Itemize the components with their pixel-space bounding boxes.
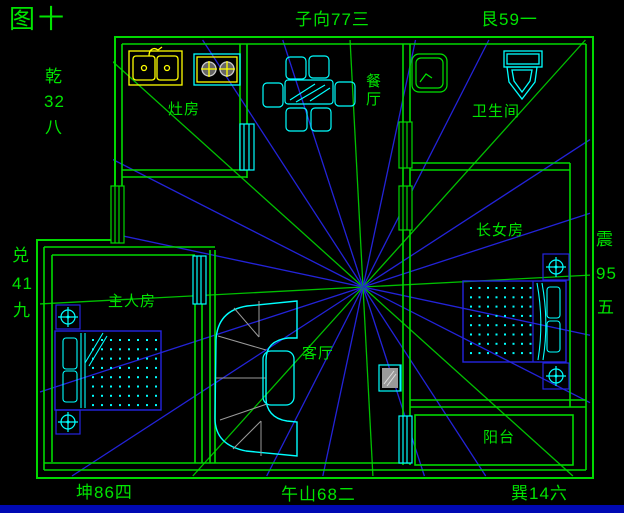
compass-label-left-lower-3: 九 [13, 302, 31, 319]
mattress-dot [101, 386, 103, 388]
mattress-dot [479, 315, 481, 317]
bedside-lamp-symbol [543, 363, 569, 389]
window-master-wall [193, 256, 206, 304]
mattress-dot [504, 343, 506, 345]
kitchen-sink [129, 47, 182, 85]
mattress-dot [479, 334, 481, 336]
mattress-dot [513, 352, 515, 354]
mattress-dot [92, 404, 94, 406]
compass-label-left-upper-2: 32 [44, 93, 65, 110]
mattress-dot [146, 404, 148, 406]
mattress-dot [119, 386, 121, 388]
mattress-dot [521, 352, 523, 354]
mattress-dot [155, 404, 157, 406]
bedside-lamp-symbol [56, 410, 80, 434]
mattress-dot [146, 358, 148, 360]
mattress-dot [128, 386, 130, 388]
mattress-dot [155, 348, 157, 350]
figure-title: 图十 [9, 6, 67, 32]
pillow [63, 338, 77, 369]
dining-chair [286, 108, 307, 131]
mattress-dot [470, 315, 472, 317]
mattress-dot [92, 339, 94, 341]
mattress-dot [513, 287, 515, 289]
mattress-dot [496, 352, 498, 354]
mattress-dot [101, 395, 103, 397]
compass-ray [363, 287, 590, 335]
mattress-dot [479, 352, 481, 354]
mattress-dot [496, 343, 498, 345]
mattress-dot [530, 324, 532, 326]
mattress-dot [530, 343, 532, 345]
mattress-dot [487, 287, 489, 289]
mattress-dot [155, 386, 157, 388]
sofa [215, 301, 297, 456]
mattress-dot [530, 315, 532, 317]
mattress-dot [496, 324, 498, 326]
mattress-dot [487, 352, 489, 354]
tv [379, 365, 401, 391]
mattress-dot [137, 358, 139, 360]
stove [194, 54, 240, 85]
mattress-dot [119, 404, 121, 406]
compass-ray [283, 40, 363, 287]
mattress-dot [110, 348, 112, 350]
mattress-dot [513, 315, 515, 317]
mattress-dot [479, 306, 481, 308]
daughter-bed [463, 281, 566, 362]
mattress-dot [110, 395, 112, 397]
compass-label-right-2: 95 [596, 265, 617, 282]
mattress-dot [521, 334, 523, 336]
dining-chair [309, 56, 329, 78]
mattress-dot [521, 324, 523, 326]
mattress-dot [487, 296, 489, 298]
mattress-dot [101, 358, 103, 360]
mattress-dot [119, 376, 121, 378]
mattress-dot [496, 334, 498, 336]
mattress-dot [504, 287, 506, 289]
mattress-dot [128, 358, 130, 360]
mattress-dot [128, 395, 130, 397]
mattress-dot [119, 358, 121, 360]
mattress-dot [137, 348, 139, 350]
room-label-bathroom: 卫生间 [472, 104, 520, 119]
compass-ray [363, 287, 373, 476]
mattress-dot [119, 395, 121, 397]
mattress-dot [128, 404, 130, 406]
pillow [547, 321, 560, 352]
mattress-dot [146, 348, 148, 350]
mattress-dot [101, 367, 103, 369]
mattress-dot [470, 343, 472, 345]
mattress-dot [521, 306, 523, 308]
mattress-dot [521, 343, 523, 345]
mattress-dot [101, 339, 103, 341]
mattress-dot [504, 315, 506, 317]
mattress-dot [496, 296, 498, 298]
mattress-dot [530, 334, 532, 336]
mattress-dot [101, 348, 103, 350]
mattress-dot [101, 376, 103, 378]
dining-chair [311, 108, 331, 131]
compass-label-left-upper-3: 八 [45, 119, 63, 136]
mattress-dot [487, 315, 489, 317]
mattress-dot [530, 287, 532, 289]
bedside-lamp-symbol [56, 305, 80, 329]
mattress-dot [110, 404, 112, 406]
window-balcony-wall [399, 416, 412, 463]
mattress-dot [504, 352, 506, 354]
pillow [547, 287, 560, 318]
room-label-dining: 餐厅 [365, 73, 380, 109]
mattress-dot [128, 348, 130, 350]
mattress-dot [487, 334, 489, 336]
compass-label-top-right: 艮59一 [481, 11, 538, 28]
mattress-dot [146, 367, 148, 369]
mattress-dot [110, 386, 112, 388]
compass-ray [350, 40, 363, 287]
mattress-dot [470, 352, 472, 354]
mattress-dot [92, 367, 94, 369]
mattress-dot [479, 287, 481, 289]
window-left-outer [111, 186, 124, 243]
mattress-dot [504, 296, 506, 298]
toilet [504, 51, 542, 99]
floor-plan-drawing [0, 0, 624, 513]
mattress-dot [146, 339, 148, 341]
mattress-dot [479, 343, 481, 345]
mattress-dot [155, 376, 157, 378]
compass-label-left-upper-1: 乾 [45, 68, 63, 85]
mattress-dot [137, 376, 139, 378]
mattress-dot [146, 376, 148, 378]
mattress-dot [513, 306, 515, 308]
compass-ray [89, 40, 363, 287]
window-mid-wall-lower [399, 186, 412, 230]
mattress-dot [92, 395, 94, 397]
mattress-dot [128, 376, 130, 378]
coffee-table [263, 351, 294, 405]
mattress-dot [92, 376, 94, 378]
mattress-dot [504, 306, 506, 308]
compass-ray [323, 287, 363, 476]
cad-floor-plan-screen: 图十 子向77三 艮59一 乾 32 八 兑 41 九 震 95 五 坤86四 … [0, 0, 624, 513]
mattress-dot [470, 287, 472, 289]
washbasin [412, 54, 447, 92]
pillow [63, 371, 77, 402]
mattress-dot [110, 358, 112, 360]
mattress-dot [487, 324, 489, 326]
mattress-dot [487, 306, 489, 308]
mattress-dot [496, 306, 498, 308]
mattress-dot [496, 287, 498, 289]
mattress-dot [513, 296, 515, 298]
mattress-dot [155, 367, 157, 369]
mattress-dot [470, 296, 472, 298]
room-label-kitchen: 灶房 [168, 102, 200, 117]
mattress-dot [155, 395, 157, 397]
mattress-dot [128, 339, 130, 341]
room-label-daughter: 长女房 [476, 223, 524, 238]
room-label-living: 客厅 [302, 346, 334, 361]
mattress-dot [110, 339, 112, 341]
compass-label-left-lower-2: 41 [12, 275, 33, 292]
mattress-dot [101, 404, 103, 406]
mattress-dot [128, 367, 130, 369]
mattress-dot [513, 343, 515, 345]
mattress-dot [513, 324, 515, 326]
compass-label-bottom-left: 坤86四 [76, 484, 133, 501]
room-label-balcony: 阳台 [483, 430, 515, 445]
mattress-dot [110, 367, 112, 369]
compass-label-bottom-right: 巽14六 [511, 485, 568, 502]
mattress-dot [155, 358, 157, 360]
mattress-dot [137, 339, 139, 341]
mattress-dot [92, 358, 94, 360]
mattress-dot [119, 339, 121, 341]
mattress-dot [479, 296, 481, 298]
bottom-taskbar-strip [0, 505, 624, 513]
compass-label-left-lower-1: 兑 [12, 247, 30, 264]
mattress-dot [137, 367, 139, 369]
mattress-dot [487, 343, 489, 345]
mattress-dot [137, 386, 139, 388]
mattress-dot [470, 334, 472, 336]
dining-chair [263, 83, 283, 107]
mattress-dot [521, 315, 523, 317]
mattress-dot [513, 334, 515, 336]
compass-label-bottom-center: 午山68二 [281, 486, 356, 503]
mattress-dot [470, 324, 472, 326]
mattress-dot [92, 386, 94, 388]
mattress-dot [470, 306, 472, 308]
mattress-dot [155, 339, 157, 341]
mattress-dot [521, 296, 523, 298]
window-mid-wall-upper [399, 122, 412, 168]
mattress-dot [137, 404, 139, 406]
mattress-dot [530, 306, 532, 308]
mattress-dot [146, 386, 148, 388]
mattress-dot [92, 348, 94, 350]
compass-label-right-1: 震 [596, 231, 614, 248]
mattress-dot [530, 296, 532, 298]
mattress-dot [119, 348, 121, 350]
mattress-dot [504, 334, 506, 336]
mattress-dot [530, 352, 532, 354]
compass-ray [267, 287, 363, 476]
mattress-dot [137, 395, 139, 397]
room-label-master: 主人房 [108, 294, 156, 309]
mattress-dot [479, 324, 481, 326]
compass-label-top: 子向77三 [295, 11, 370, 28]
mattress-dot [119, 367, 121, 369]
compass-label-right-3: 五 [597, 299, 615, 316]
mattress-dot [496, 315, 498, 317]
mattress-dot [146, 395, 148, 397]
mattress-dot [521, 287, 523, 289]
dining-table [285, 80, 333, 104]
mattress-dot [504, 324, 506, 326]
window-kitchen-wall [240, 124, 254, 170]
mattress-dot [110, 376, 112, 378]
